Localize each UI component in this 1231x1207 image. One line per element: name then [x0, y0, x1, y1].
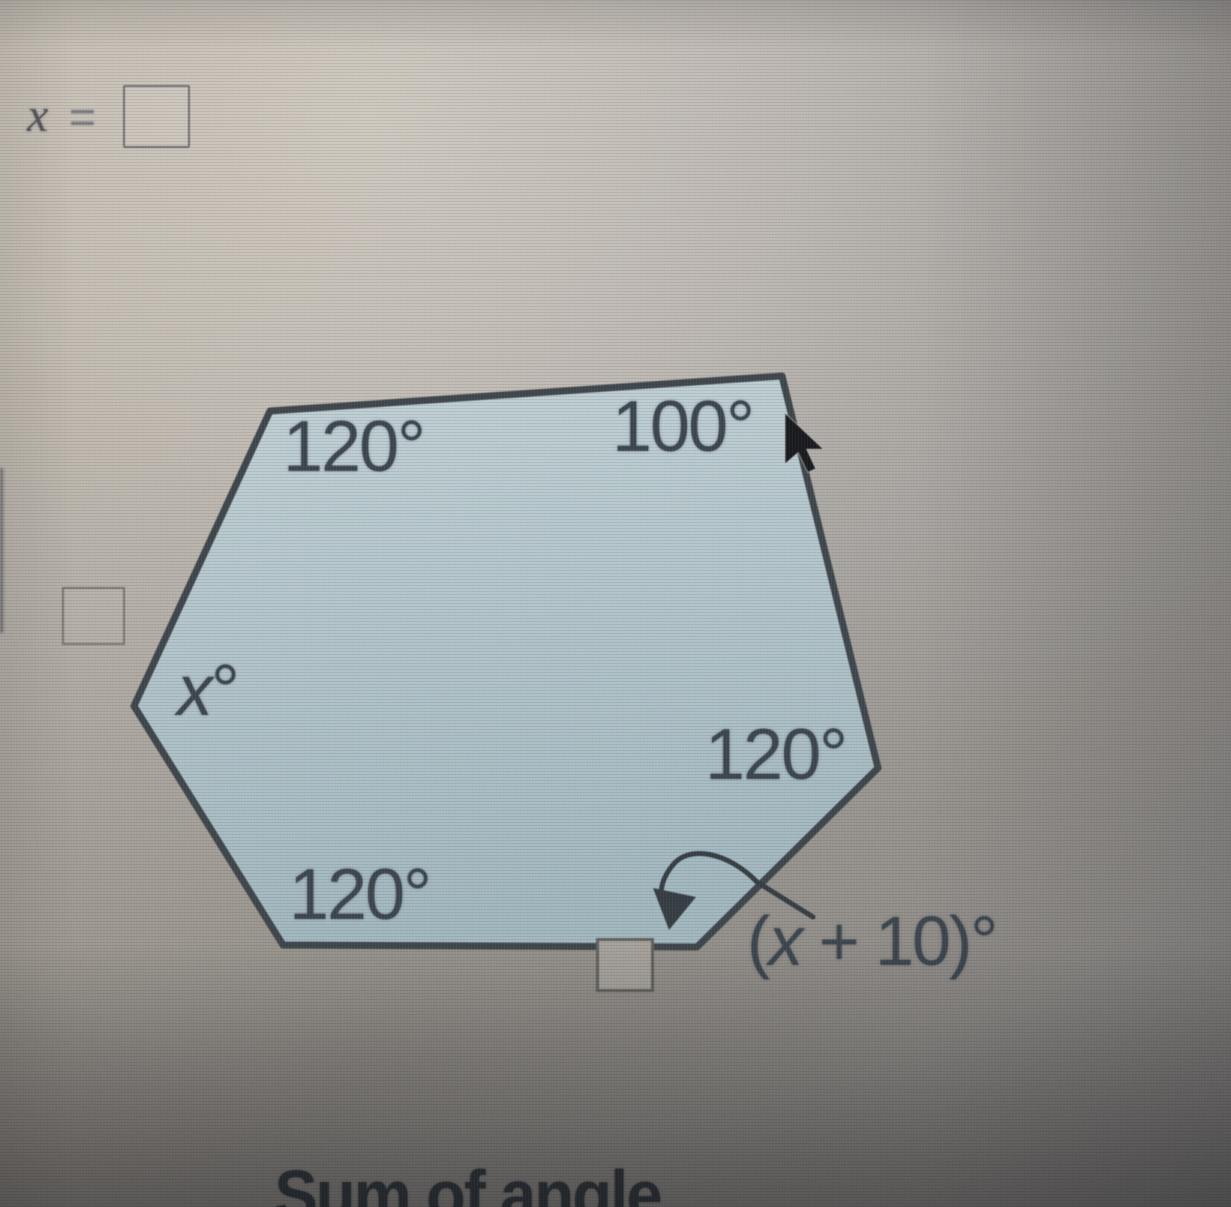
photo-content-layer: x = 120° 100° x° 120° 120° (x + 10)° — [0, 0, 1231, 1207]
photo-edge-artifact — [0, 468, 5, 633]
screen-photo: x = 120° 100° x° 120° 120° (x + 10)° — [0, 0, 1231, 1207]
mouse-cursor-icon — [0, 0, 1231, 1207]
